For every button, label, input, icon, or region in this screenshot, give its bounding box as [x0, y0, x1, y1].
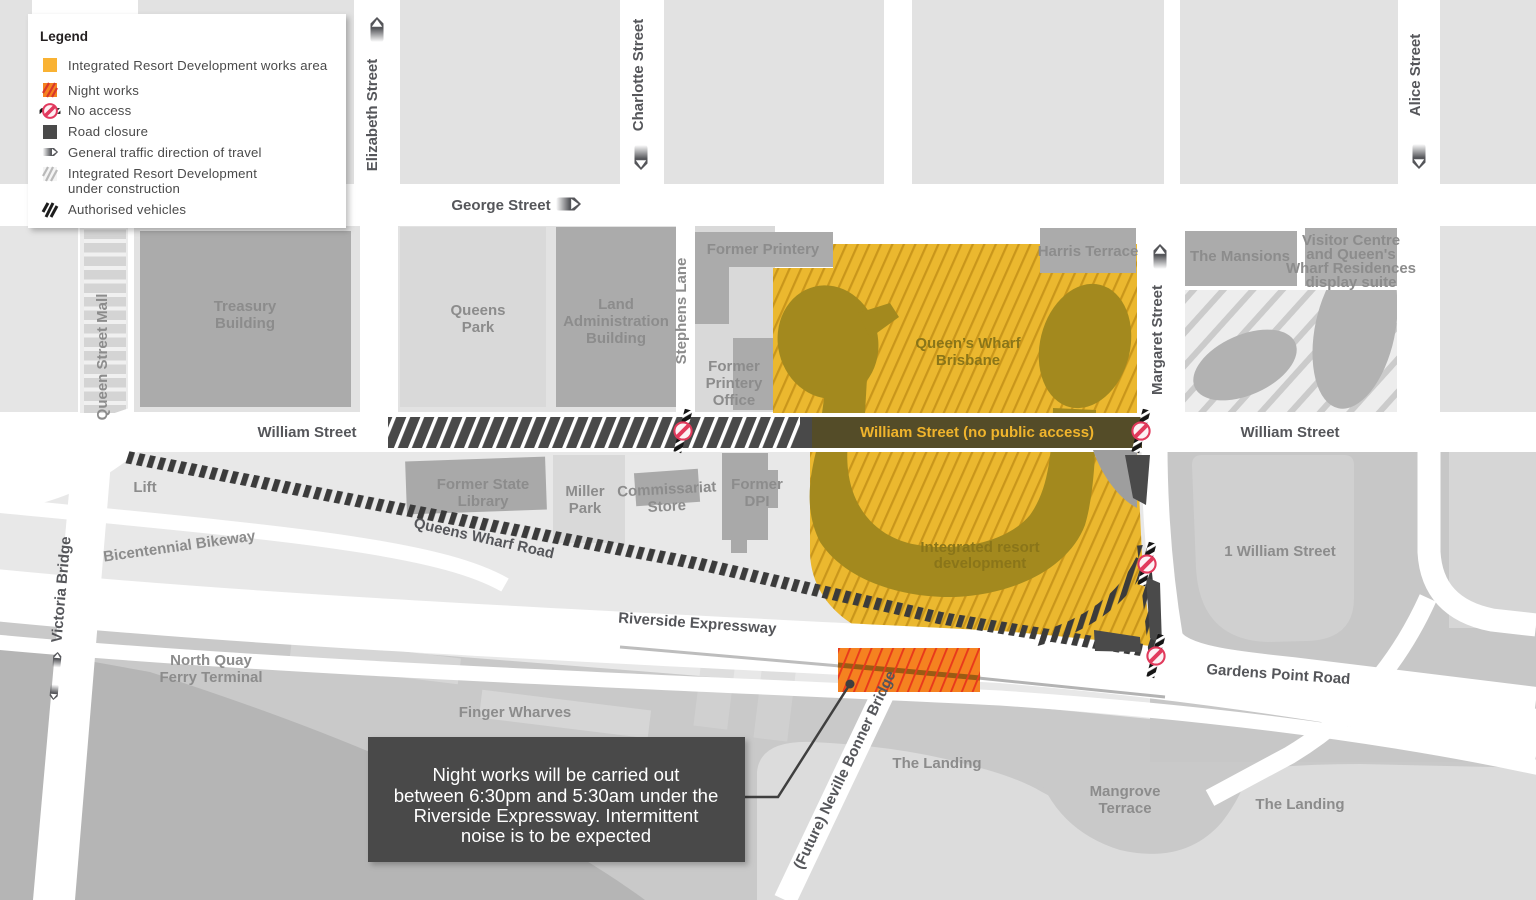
svg-text:William Street: William Street — [257, 424, 356, 441]
svg-text:The Landing: The Landing — [892, 755, 981, 772]
svg-text:display suite: display suite — [1306, 274, 1397, 291]
svg-text:Land: Land — [598, 296, 634, 313]
svg-text:DPI: DPI — [744, 493, 769, 510]
svg-text:William Street: William Street — [1240, 424, 1339, 441]
svg-text:Lift: Lift — [133, 479, 156, 496]
svg-text:Queen Street Mall: Queen Street Mall — [94, 294, 111, 421]
svg-text:Riverside Expressway. Intermit: Riverside Expressway. Intermittent — [414, 805, 700, 826]
svg-text:Charlotte Street: Charlotte Street — [630, 19, 647, 132]
svg-text:Former Printery: Former Printery — [707, 241, 820, 258]
svg-text:Ferry Terminal: Ferry Terminal — [159, 669, 262, 686]
svg-text:Integrated resort: Integrated resort — [920, 539, 1039, 556]
svg-text:Park: Park — [569, 500, 602, 517]
svg-text:Miller: Miller — [565, 483, 604, 500]
svg-text:Integrated Resort Development: Integrated Resort Development — [68, 166, 257, 181]
svg-text:development: development — [934, 555, 1027, 572]
svg-text:noise is to be expected: noise is to be expected — [461, 825, 651, 846]
svg-text:General traffic direction of t: General traffic direction of travel — [68, 145, 262, 160]
svg-text:Mangrove: Mangrove — [1090, 783, 1161, 800]
svg-text:Night works will be carried ou: Night works will be carried out — [433, 764, 681, 785]
svg-text:between 6:30pm and 5:30am unde: between 6:30pm and 5:30am under the — [394, 785, 719, 806]
svg-text:Authorised vehicles: Authorised vehicles — [68, 202, 186, 217]
svg-text:Building: Building — [215, 315, 275, 332]
svg-text:Brisbane: Brisbane — [936, 352, 1000, 369]
svg-text:Terrace: Terrace — [1098, 800, 1151, 817]
svg-text:Office: Office — [713, 392, 756, 409]
svg-text:Former: Former — [731, 476, 783, 493]
svg-text:Library: Library — [458, 493, 510, 510]
svg-text:Treasury: Treasury — [214, 298, 277, 315]
svg-text:North Quay: North Quay — [170, 652, 252, 669]
svg-text:Building: Building — [586, 330, 646, 347]
svg-text:The Mansions: The Mansions — [1190, 248, 1290, 265]
svg-text:Finger Wharves: Finger Wharves — [459, 704, 572, 721]
svg-text:1 William Street: 1 William Street — [1224, 543, 1336, 560]
svg-text:Park: Park — [462, 319, 495, 336]
svg-text:William Street (no public acce: William Street (no public access) — [860, 424, 1094, 441]
svg-text:Former State: Former State — [437, 476, 530, 493]
svg-text:Former: Former — [708, 358, 760, 375]
svg-text:Queens: Queens — [450, 302, 505, 319]
svg-text:Alice Street: Alice Street — [1407, 34, 1424, 117]
svg-text:George Street: George Street — [451, 197, 550, 214]
svg-text:Elizabeth Street: Elizabeth Street — [364, 59, 381, 172]
svg-text:Night works: Night works — [68, 83, 139, 98]
svg-text:Stephens Lane: Stephens Lane — [673, 258, 690, 365]
svg-text:Printery: Printery — [706, 375, 763, 392]
svg-text:The Landing: The Landing — [1255, 796, 1344, 813]
svg-text:Road closure: Road closure — [68, 124, 148, 139]
svg-text:Store: Store — [647, 497, 686, 516]
svg-text:under construction: under construction — [68, 181, 180, 196]
svg-text:Margaret Street: Margaret Street — [1149, 285, 1166, 395]
svg-text:No access: No access — [68, 103, 132, 118]
svg-text:Integrated Resort Development: Integrated Resort Development works area — [68, 58, 328, 73]
svg-text:Administration: Administration — [563, 313, 669, 330]
svg-text:Legend: Legend — [40, 29, 88, 44]
svg-text:Queen’s Wharf: Queen’s Wharf — [915, 335, 1021, 352]
svg-text:Harris Terrace: Harris Terrace — [1038, 243, 1139, 260]
